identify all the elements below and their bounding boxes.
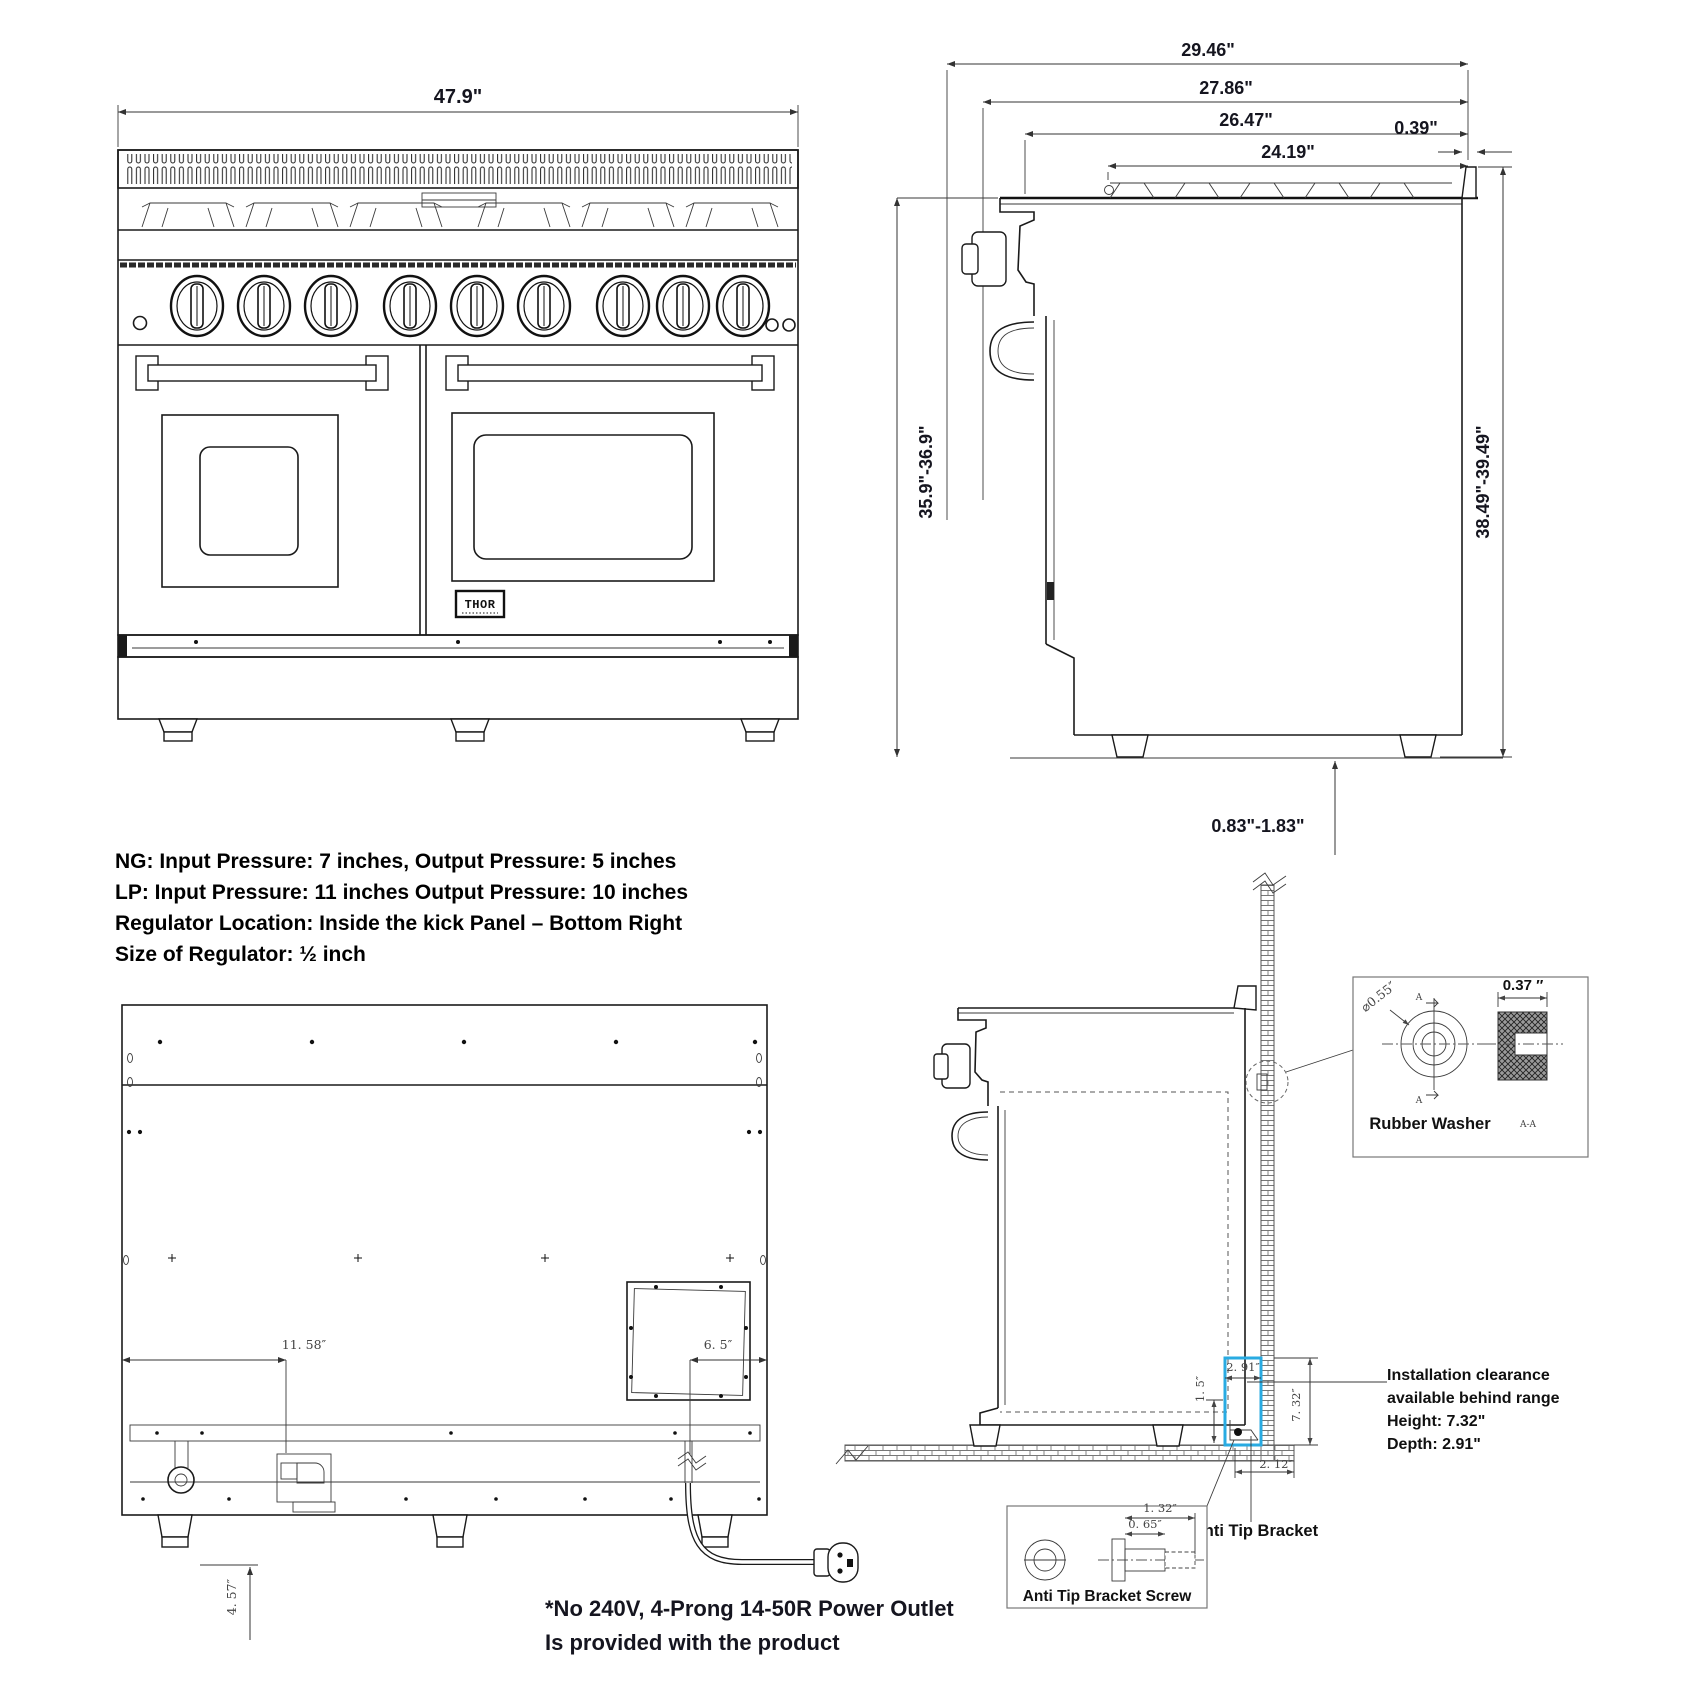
clearance-note-line-3: Height: 7.32" [1387, 1410, 1617, 1433]
gas-note-line-3: Regulator Location: Inside the kick Pane… [115, 908, 815, 939]
lower-rail [118, 635, 798, 657]
height-back-label: 38.49"-39.49" [1473, 425, 1493, 538]
side-door-handle [990, 322, 1034, 380]
backguard-lip [1462, 167, 1476, 198]
gas-regulator [277, 1454, 335, 1512]
power-outlet-note: *No 240V, 4-Prong 14-50R Power Outlet Is… [545, 1592, 1005, 1660]
section-label: A-A [1519, 1120, 1537, 1130]
back-fasteners [124, 1130, 766, 1264]
screw-length-label: 1. 32″ [1143, 1501, 1177, 1515]
installation-diagram: 2. 91″ 1. 5″ 7. 32″ 2. 12″ Anti Tip Brac… [830, 860, 1610, 1670]
side-body-profile [962, 167, 1503, 758]
clearance-gap-label: 1. 5″ [1193, 1375, 1207, 1402]
leg-adjust-label: 0.83"-1.83" [1211, 816, 1304, 836]
indicator-light [134, 317, 147, 330]
junction-offset-label: 6. 5″ [704, 1337, 733, 1352]
control-panel [134, 276, 796, 336]
power-note-line-2: Is provided with the product [545, 1626, 1005, 1660]
cavity-dashed-outline [1000, 1092, 1228, 1412]
gas-note-line-1: NG: Input Pressure: 7 inches, Output Pre… [115, 846, 815, 877]
gas-inlet [168, 1441, 194, 1493]
depth-top-label: 24.19" [1261, 142, 1315, 162]
rubber-washer-title: Rubber Washer [1369, 1115, 1491, 1133]
section-marker-bottom: A [1415, 1096, 1423, 1106]
side-foot-back [1400, 735, 1436, 757]
right-door-window-inner [474, 435, 692, 559]
clearance-height-label: 7. 32″ [1289, 1388, 1303, 1422]
side-depth-dimensions: 29.46" 27.86" 26.47" 24.19" 0.39" [947, 40, 1512, 520]
rubber-washer-detail: A A ⌀0.55″ 0.37 ″ Rubber Washer A-A [1353, 977, 1588, 1157]
back-bottom-rail [130, 1425, 761, 1501]
install-range-profile [934, 986, 1256, 1446]
washer-width-label: 0.37 ″ [1503, 977, 1544, 994]
left-door-handle [136, 356, 388, 390]
section-marker-top: A [1415, 993, 1423, 1003]
front-width-label: 47.9" [434, 86, 482, 108]
backguard-vent-strip [118, 150, 798, 188]
cooktop-grates [118, 193, 798, 230]
back-feet [158, 1515, 732, 1547]
depth-total-label: 29.46" [1181, 40, 1235, 60]
depth-body-label: 26.47" [1219, 110, 1273, 130]
depth-door-label: 27.86" [1199, 78, 1253, 98]
back-dimensions: 11. 58″ 6. 5″ [122, 1337, 767, 1455]
installation-clearance-note: Installation clearance available behind … [1387, 1364, 1617, 1456]
gas-inlet-offset-label: 11. 58″ [282, 1337, 327, 1352]
light-button [783, 319, 795, 331]
height-front-label: 35.9"-36.9" [916, 425, 936, 518]
back-top-strip [122, 1040, 767, 1087]
right-door-window [452, 413, 714, 581]
anti-tip-bracket: Anti Tip Bracket [1192, 1420, 1319, 1540]
cooktop-trim-band [118, 260, 798, 265]
back-lip-label: 0.39" [1394, 118, 1438, 138]
grate-front-bolt [1105, 186, 1114, 195]
back-view-drawing: 11. 58″ 6. 5″ [100, 985, 880, 1675]
gas-drop-dimension: 4. 57″ [200, 1565, 258, 1640]
side-view-drawing: 29.46" 27.86" 26.47" 24.19" 0.39" [860, 20, 1520, 880]
anti-tip-screw-detail: 0. 65″ 1. 32″ Anti Tip Bracket Screw [1007, 1501, 1207, 1608]
anti-tip-screw-label: Anti Tip Bracket Screw [1023, 1588, 1192, 1605]
power-note-line-1: *No 240V, 4-Prong 14-50R Power Outlet [545, 1592, 1005, 1626]
left-door-window [162, 415, 338, 587]
gas-drop-label: 4. 57″ [224, 1578, 239, 1615]
side-foot-front [1112, 735, 1148, 757]
brand-logo: THOR [456, 591, 504, 617]
screw-shaft-label: 0. 65″ [1128, 1517, 1162, 1531]
right-door-handle [446, 356, 774, 390]
igniter-button [766, 319, 778, 331]
gas-note-line-2: LP: Input Pressure: 11 inches Output Pre… [115, 877, 815, 908]
range-body-outline [118, 150, 798, 635]
left-door-window-inner [200, 447, 298, 555]
front-view-drawing: 47.9" [100, 75, 820, 765]
gas-note-line-4: Size of Regulator: ½ inch [115, 939, 815, 970]
gas-pressure-note: NG: Input Pressure: 7 inches, Output Pre… [115, 846, 815, 970]
oven-doors: THOR [118, 345, 798, 635]
front-width-dimension: 47.9" [118, 86, 798, 147]
clearance-note-line-4: Depth: 2.91" [1387, 1433, 1617, 1456]
kick-panel [118, 657, 798, 719]
clearance-note-line-1: Installation clearance [1387, 1364, 1617, 1387]
installation-manual-page: 47.9" [0, 0, 1700, 1700]
door-latch [1047, 582, 1054, 600]
svg-text:THOR: THOR [465, 598, 496, 612]
back-panel [122, 1005, 767, 1515]
anti-tip-bracket-label: Anti Tip Bracket [1192, 1522, 1319, 1540]
clearance-note-line-2: available behind range [1387, 1387, 1617, 1410]
clearance-depth-label: 2. 91″ [1226, 1360, 1260, 1374]
bracket-offset-label: 2. 12″ [1259, 1457, 1293, 1471]
